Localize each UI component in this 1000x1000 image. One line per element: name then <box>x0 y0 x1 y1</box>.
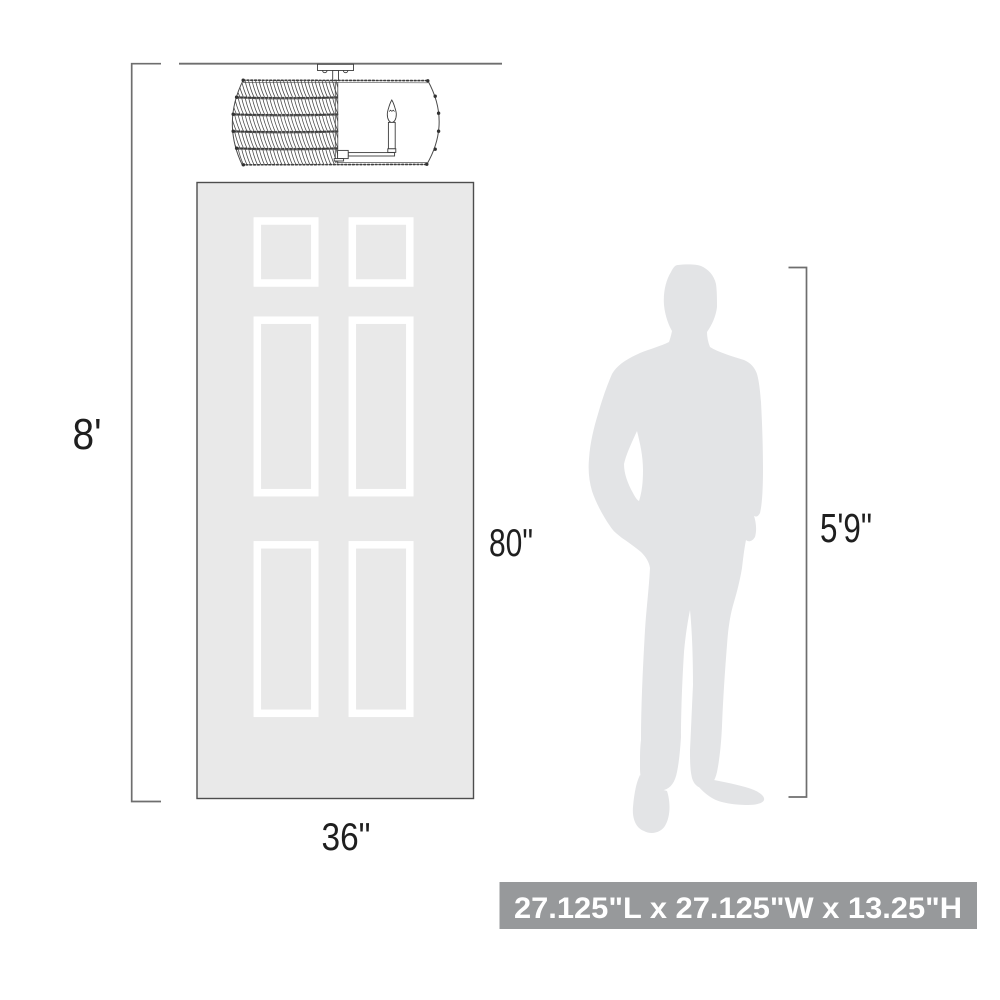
svg-text:36": 36" <box>322 816 371 859</box>
svg-text:5'9": 5'9" <box>820 505 872 551</box>
svg-text:8': 8' <box>73 410 102 459</box>
svg-text:80": 80" <box>489 522 533 565</box>
svg-text:27.125"L x 27.125"W x 13.25"H: 27.125"L x 27.125"W x 13.25"H <box>514 892 962 925</box>
